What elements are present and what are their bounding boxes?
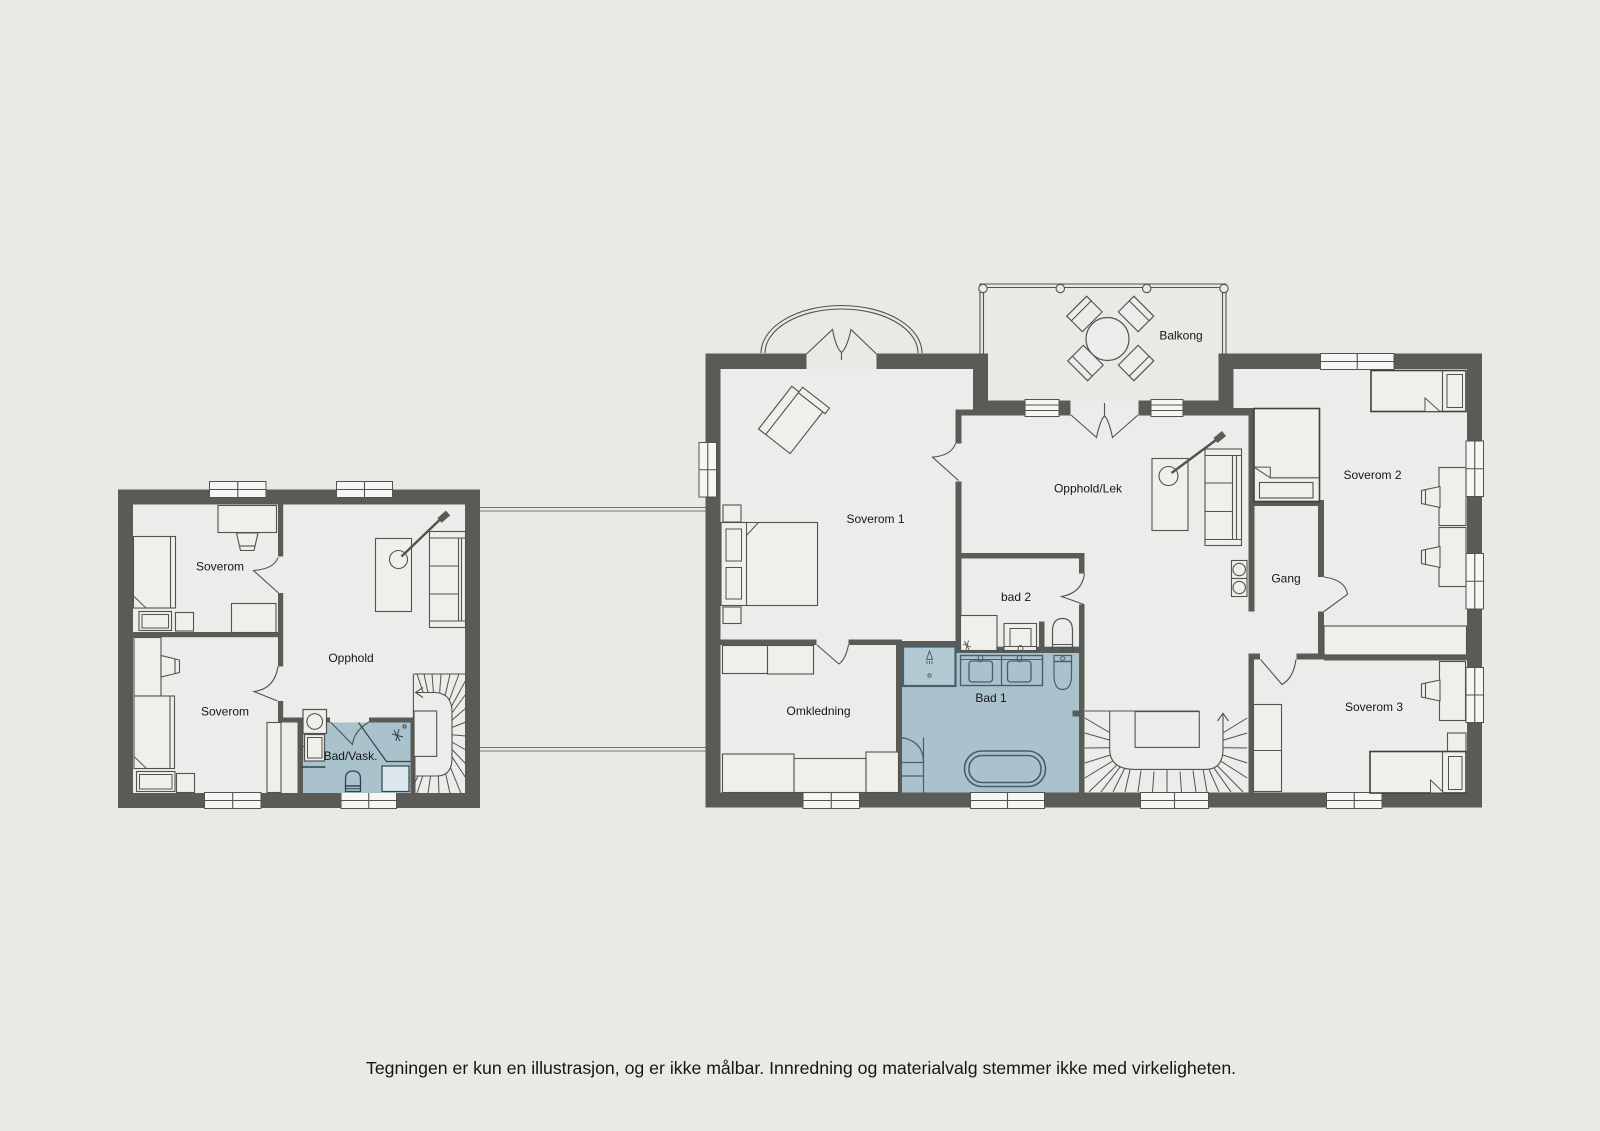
svg-text:bad 2: bad 2 bbox=[1001, 590, 1031, 604]
svg-text:Opphold/Lek: Opphold/Lek bbox=[1054, 482, 1123, 496]
svg-text:Soverom: Soverom bbox=[196, 560, 244, 574]
svg-text:Tegningen er kun en illustrasj: Tegningen er kun en illustrasjon, og er … bbox=[366, 1058, 1236, 1078]
svg-text:Soverom: Soverom bbox=[201, 705, 249, 719]
svg-text:Soverom 1: Soverom 1 bbox=[846, 512, 904, 526]
svg-text:Soverom 2: Soverom 2 bbox=[1343, 468, 1401, 482]
svg-text:Omkledning: Omkledning bbox=[786, 704, 850, 718]
svg-text:Gang: Gang bbox=[1271, 572, 1300, 586]
svg-text:Bad 1: Bad 1 bbox=[975, 691, 1007, 705]
svg-text:Balkong: Balkong bbox=[1159, 329, 1202, 343]
svg-text:Bad/Vask.: Bad/Vask. bbox=[324, 749, 378, 763]
svg-text:Soverom 3: Soverom 3 bbox=[1345, 700, 1403, 714]
svg-text:Opphold: Opphold bbox=[328, 651, 373, 665]
